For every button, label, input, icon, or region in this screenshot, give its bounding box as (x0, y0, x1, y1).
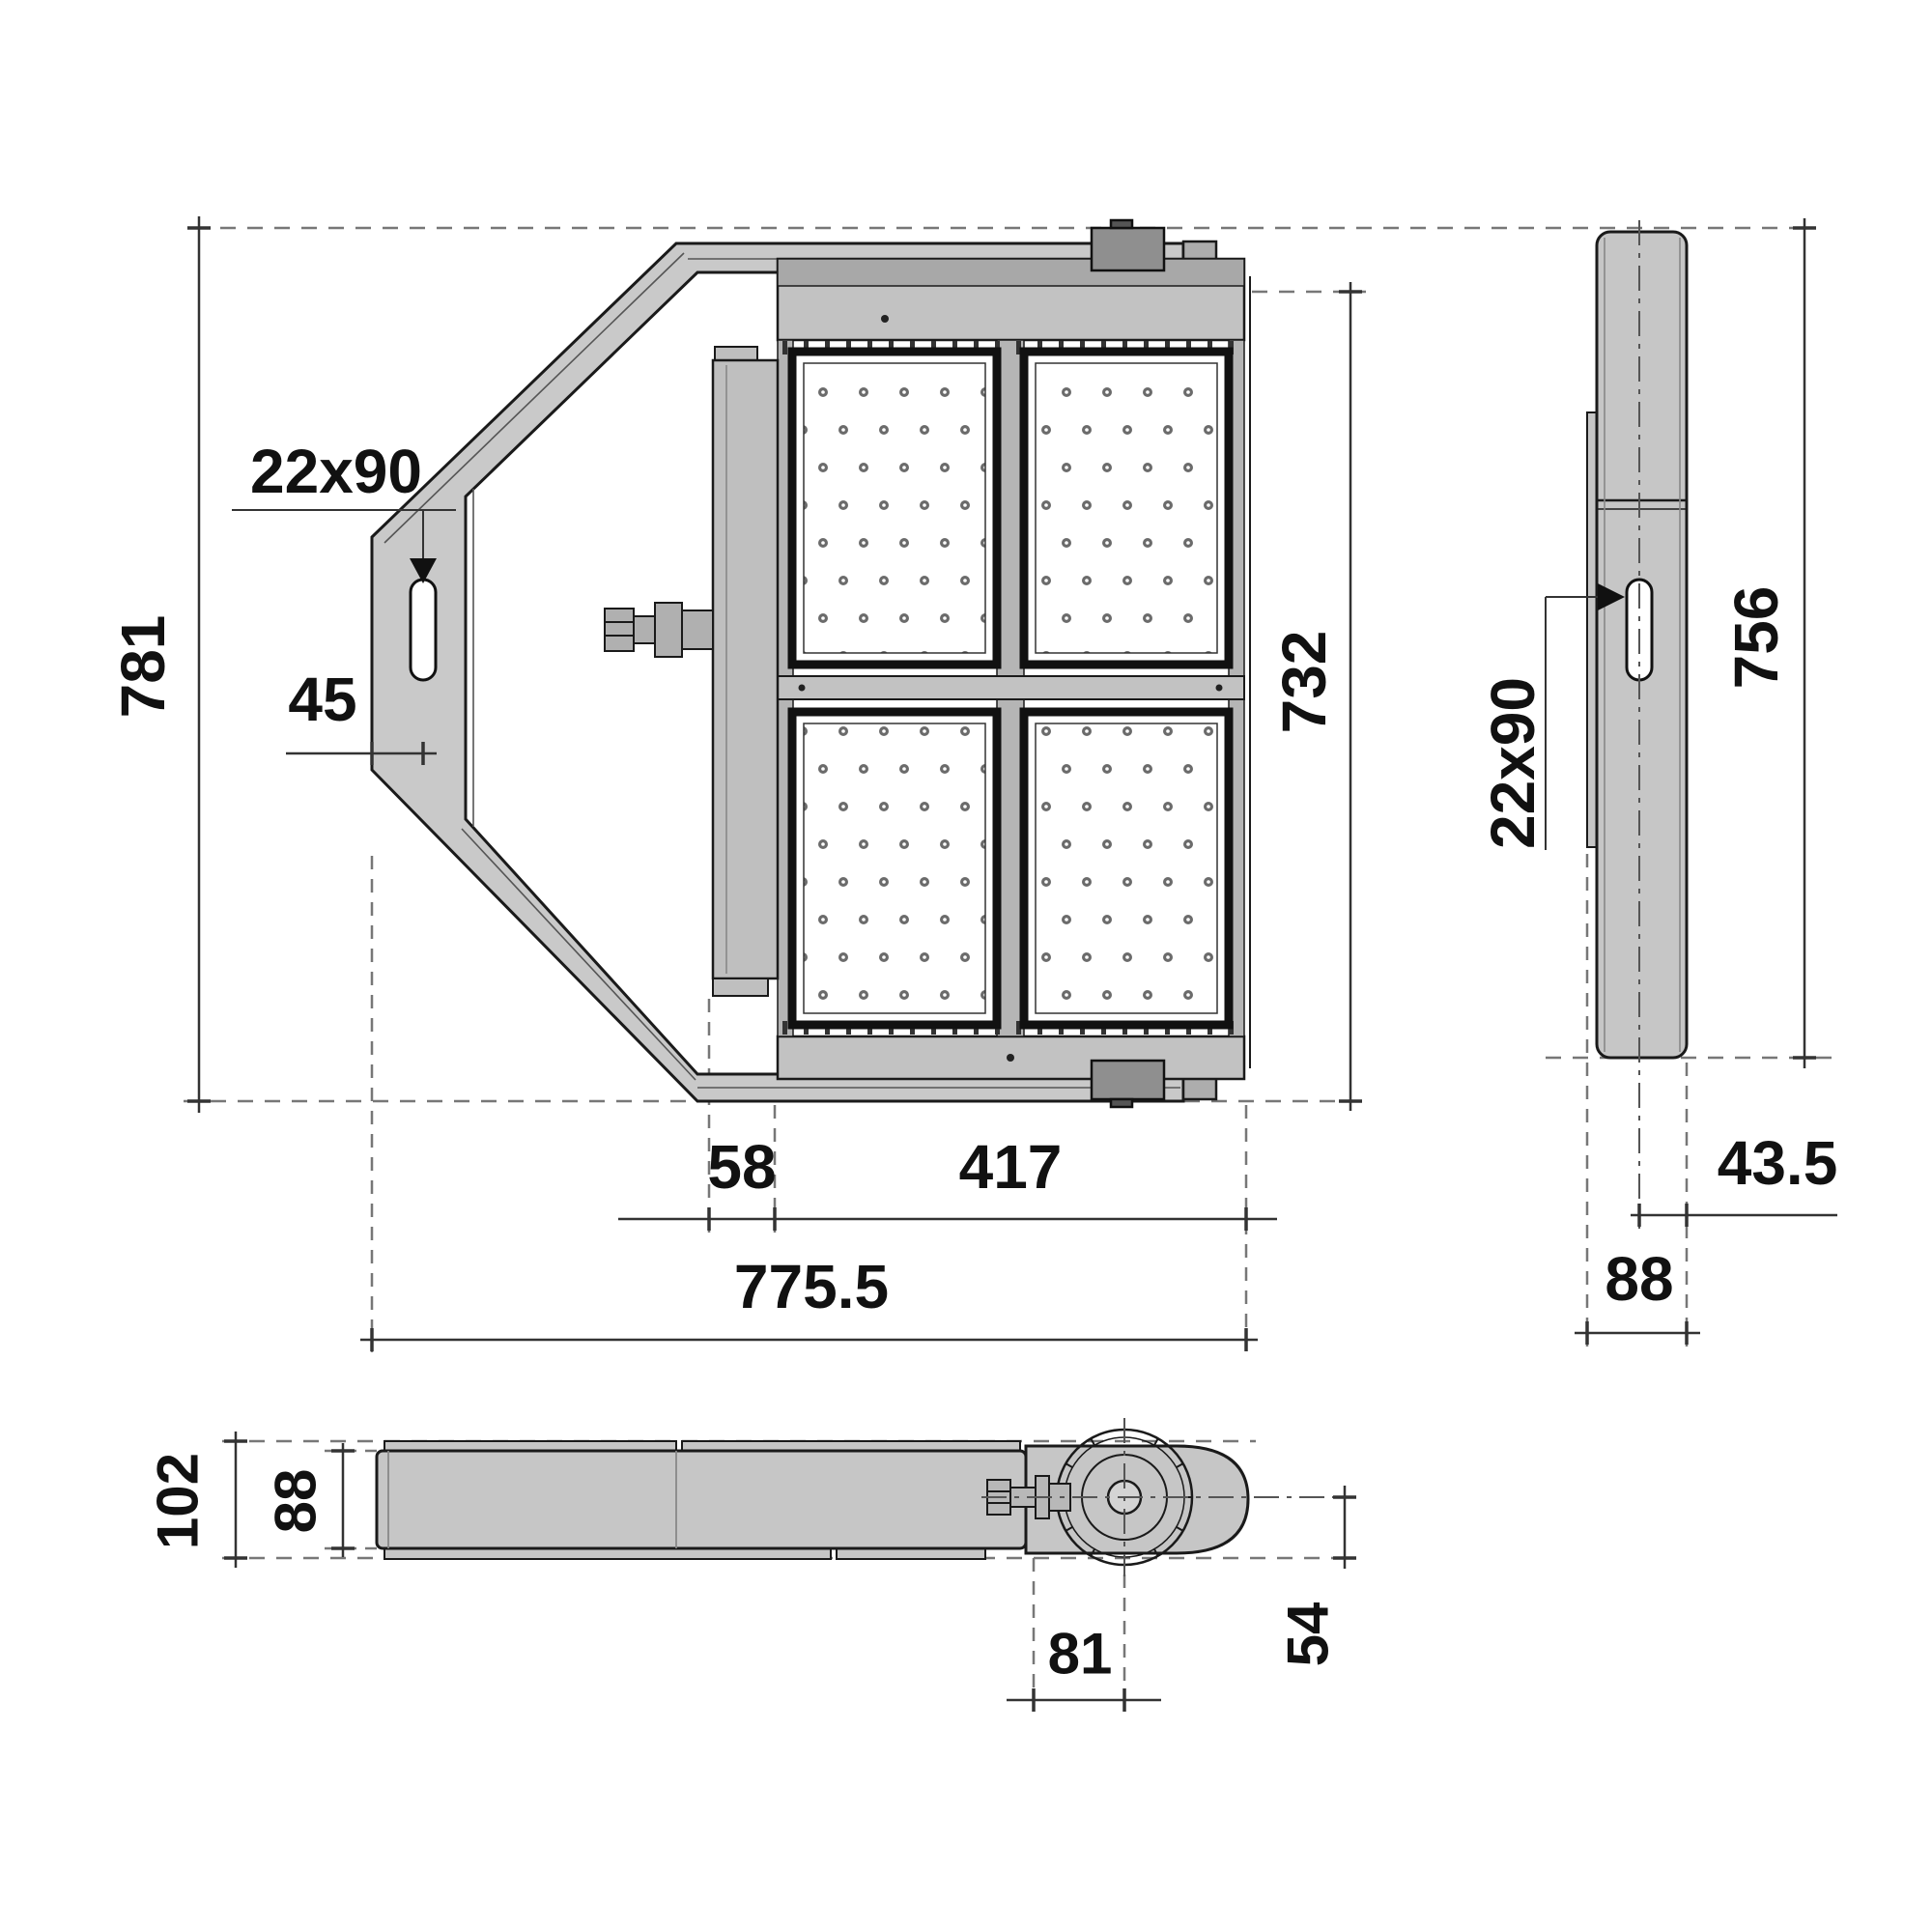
terminal-box-top (1092, 228, 1164, 270)
gland-collar (682, 610, 713, 649)
label-781: 781 (108, 615, 178, 719)
dim-58-417 (618, 1207, 1277, 1231)
led-panel-top-left (792, 352, 997, 665)
plan-body-bar (377, 1451, 1026, 1548)
cable-gland (605, 603, 713, 657)
label-81: 81 (1048, 1622, 1113, 1687)
bottom-view (377, 1430, 1248, 1565)
label-58: 58 (707, 1132, 776, 1202)
rear-plate (713, 360, 778, 978)
slot-callout-front (232, 510, 456, 583)
dim-rear-depth-43-5 (1631, 1204, 1837, 1227)
dim-overall-height-781 (187, 216, 211, 1113)
gland-flange (655, 603, 682, 657)
rear-plate-top-tab (715, 347, 757, 360)
dim-plan-body-88 (331, 1443, 355, 1557)
bottom-bar-screw (1007, 1054, 1014, 1062)
plan-bottom-flange-right (837, 1548, 985, 1559)
dim-plan-depth-102 (224, 1432, 247, 1568)
dim-bolt-to-axis-81 (1007, 1688, 1161, 1712)
label-22x90-front: 22x90 (250, 437, 422, 506)
label-102: 102 (146, 1453, 211, 1549)
terminal-box-top-nub (1111, 220, 1132, 228)
drawing-canvas: 781 22x90 45 732 58 417 775.5 22x90 756 … (0, 0, 1932, 1928)
front-view (372, 220, 1250, 1107)
label-43-5: 43.5 (1718, 1128, 1838, 1198)
label-54: 54 (1276, 1602, 1341, 1666)
housing-top-bar-edge (778, 259, 1244, 286)
label-88-plan: 88 (264, 1469, 328, 1534)
gland-neck (634, 616, 655, 643)
top-bar-screw (881, 315, 889, 323)
rear-plate-bottom-step (713, 978, 768, 996)
dim-axis-to-face-54 (1333, 1486, 1356, 1569)
label-22x90-side: 22x90 (1478, 677, 1548, 849)
bracket-slot (411, 580, 436, 680)
label-732: 732 (1269, 631, 1339, 734)
dim-overall-width-775 (360, 1328, 1258, 1351)
housing-mid-divider (778, 676, 1244, 699)
technical-drawing-page: 781 22x90 45 732 58 417 775.5 22x90 756 … (0, 0, 1932, 1928)
label-88-side: 88 (1605, 1244, 1673, 1314)
dim-side-height-756 (1793, 218, 1816, 1068)
dim-side-depth-88 (1575, 1321, 1700, 1345)
led-panel-bottom-left (792, 712, 997, 1025)
plan-bottom-flange-left (384, 1548, 831, 1559)
label-417: 417 (959, 1132, 1063, 1202)
label-45: 45 (288, 665, 356, 734)
dim-housing-height-732 (1339, 282, 1362, 1111)
gland-nut (605, 609, 634, 651)
led-panel-bottom-right (1024, 712, 1229, 1025)
terminal-box-bottom-nub (1111, 1099, 1132, 1107)
led-housing (778, 259, 1250, 1079)
side-view (1587, 232, 1687, 1058)
label-775-5: 775.5 (734, 1252, 889, 1321)
terminal-box-bottom (1092, 1061, 1164, 1099)
led-panel-top-right (1024, 352, 1229, 665)
rear-plate-assembly (605, 347, 778, 996)
label-756: 756 (1721, 586, 1791, 690)
